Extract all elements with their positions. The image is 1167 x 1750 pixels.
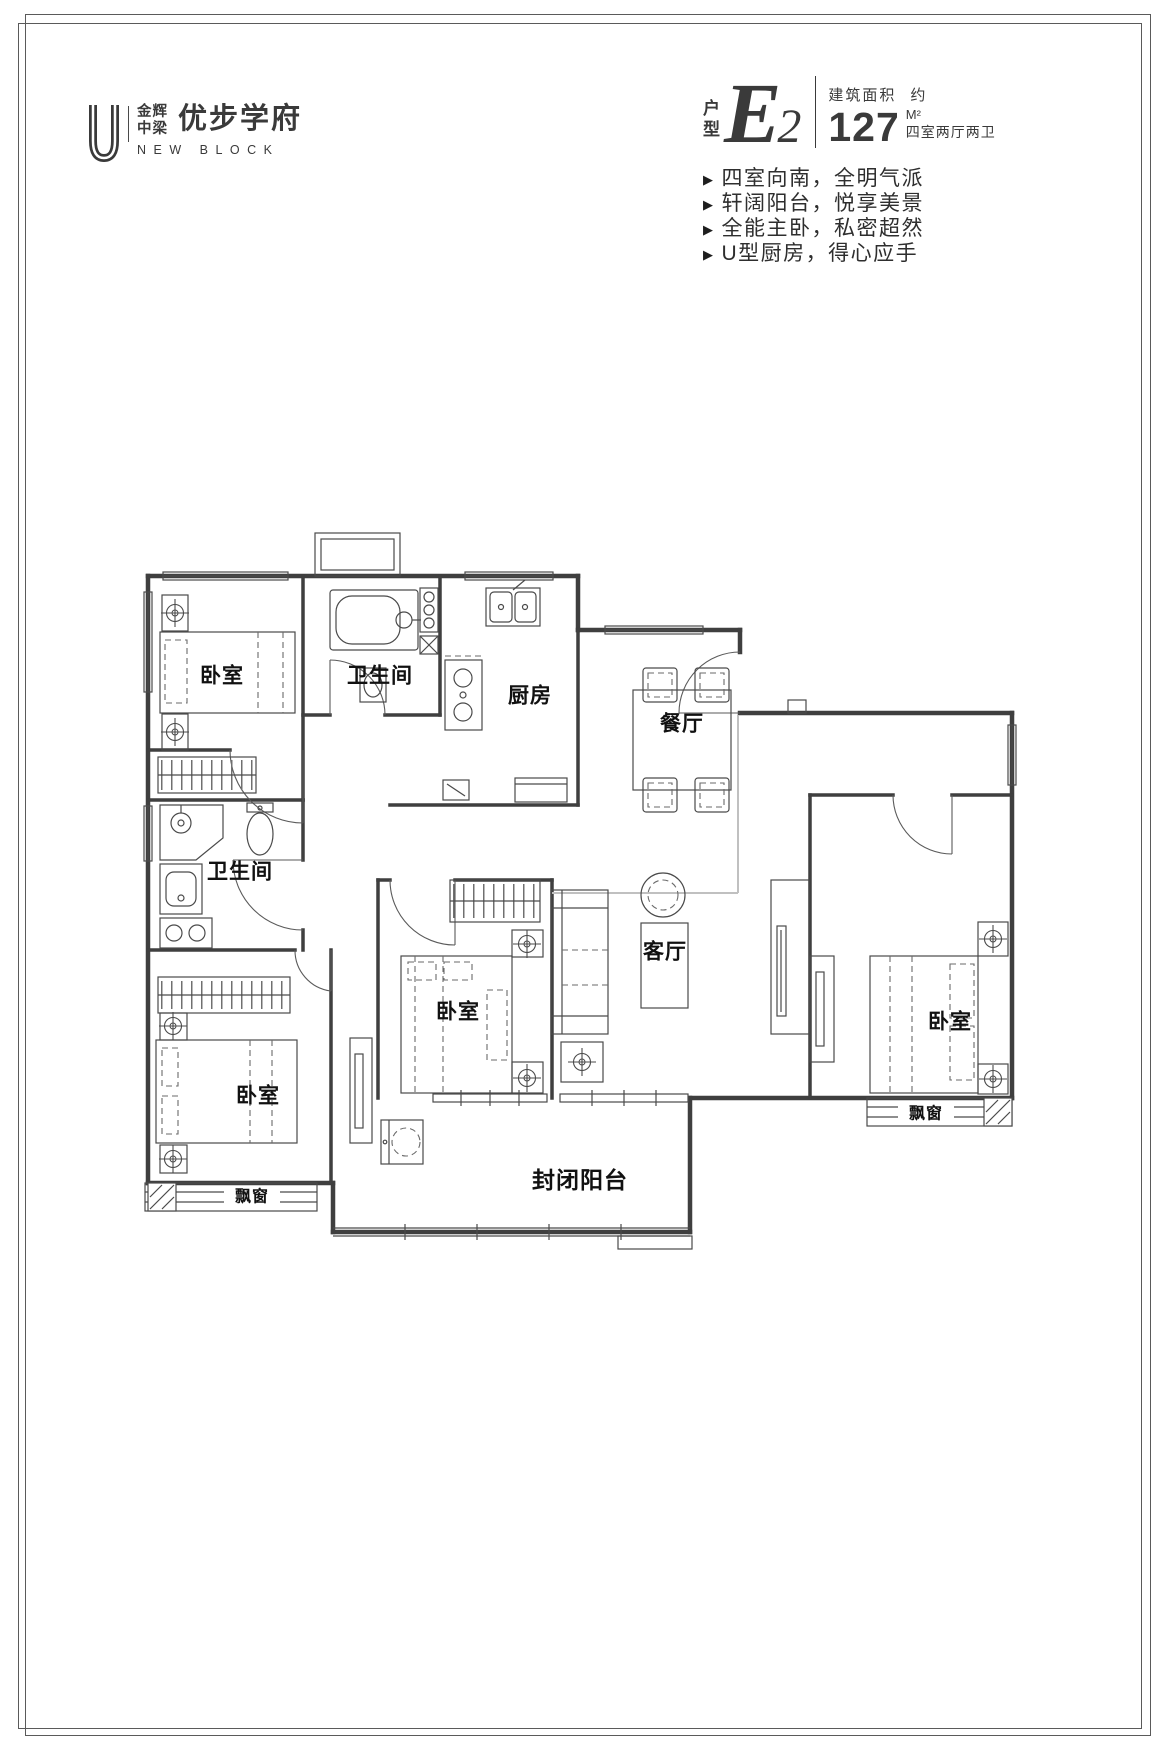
sofa-side-table	[561, 1042, 603, 1082]
exterior-walls	[148, 576, 1012, 1232]
balcony-glazing	[333, 1224, 692, 1249]
room-label-dining: 餐厅	[660, 712, 704, 736]
kitchen-sink	[486, 580, 540, 626]
room-label-bedroom-right: 卧室	[928, 1010, 972, 1034]
room-label-bay-left: 飘窗	[235, 1187, 269, 1206]
door-bedroom-bottom-left	[295, 950, 331, 991]
tv-console-living	[771, 880, 809, 1034]
room-labels: 卧室 卫生间 厨房 餐厅 卫生间 卧室 客厅 卧室 卧室 封闭阳台 飘窗 飘窗	[200, 664, 972, 1206]
hatch-corner	[984, 1098, 1012, 1126]
room-label-bathroom-top: 卫生间	[347, 664, 413, 688]
shaft-x-box	[420, 636, 438, 654]
bath-washer-cabinet	[160, 918, 212, 948]
hall-closet	[158, 757, 256, 793]
nightstand	[978, 922, 1008, 956]
room-label-living: 客厅	[643, 940, 687, 964]
floorplan-flyer-page: { "logo": { "mark": "U", "brand_top": "金…	[0, 0, 1167, 1750]
bath-cabinet	[420, 588, 438, 632]
room-label-kitchen: 厨房	[508, 684, 552, 708]
bay-window-left	[145, 1183, 317, 1211]
room-label-bathroom-mid: 卫生间	[207, 860, 273, 884]
room-label-balcony: 封闭阳台	[532, 1167, 628, 1193]
window-dining-top	[605, 626, 703, 634]
stove	[445, 656, 482, 730]
slider-living-balcony	[560, 1090, 688, 1106]
toilet	[247, 803, 273, 855]
nightstand	[161, 714, 189, 750]
sofa	[551, 890, 608, 1034]
doors	[230, 652, 952, 991]
room-label-bedroom-top-left: 卧室	[200, 664, 244, 688]
floorplan-drawing: 卧室 卫生间 厨房 餐厅 卫生间 卧室 客厅 卧室 卧室 封闭阳台 飘窗 飘窗	[0, 0, 1167, 1750]
door-bedroom-right	[893, 795, 952, 854]
nightstand	[512, 930, 543, 958]
hatch-corner	[148, 1183, 176, 1211]
window-bathroom-left	[144, 806, 152, 861]
shower	[160, 805, 223, 860]
nightstand	[512, 1062, 543, 1093]
room-label-bay-right: 飘窗	[909, 1104, 943, 1123]
bed-mid	[401, 956, 512, 1093]
kitchen-counter	[443, 778, 567, 802]
window-kitchen-top	[465, 572, 553, 580]
coffee-table	[641, 923, 688, 1008]
window-bedroom-top	[163, 572, 288, 580]
windows	[144, 533, 1016, 1249]
round-side-table	[641, 873, 685, 917]
room-label-bedroom-mid: 卧室	[436, 1000, 480, 1024]
nightstand	[159, 1145, 187, 1173]
nightstand	[161, 595, 189, 631]
tv-console-bedroom-right	[810, 956, 834, 1062]
window-bedroom-left	[144, 592, 152, 692]
washing-machine	[381, 1120, 423, 1164]
tv-console-bedroom-bottom-left	[350, 1038, 372, 1143]
nightstand	[978, 1064, 1008, 1094]
wardrobe-bedroom-bottom-left	[158, 977, 290, 1013]
wardrobe-bedroom-mid	[450, 880, 540, 922]
sink-bathroom-mid	[160, 864, 202, 914]
room-label-bedroom-bottom-left: 卧室	[236, 1084, 280, 1108]
bathtub	[330, 590, 421, 650]
dining-table	[633, 668, 731, 812]
door-bedroom-mid	[390, 880, 455, 945]
shaft-box	[315, 533, 400, 576]
nightstand	[159, 1012, 187, 1040]
window-foyer-right	[1008, 725, 1016, 785]
